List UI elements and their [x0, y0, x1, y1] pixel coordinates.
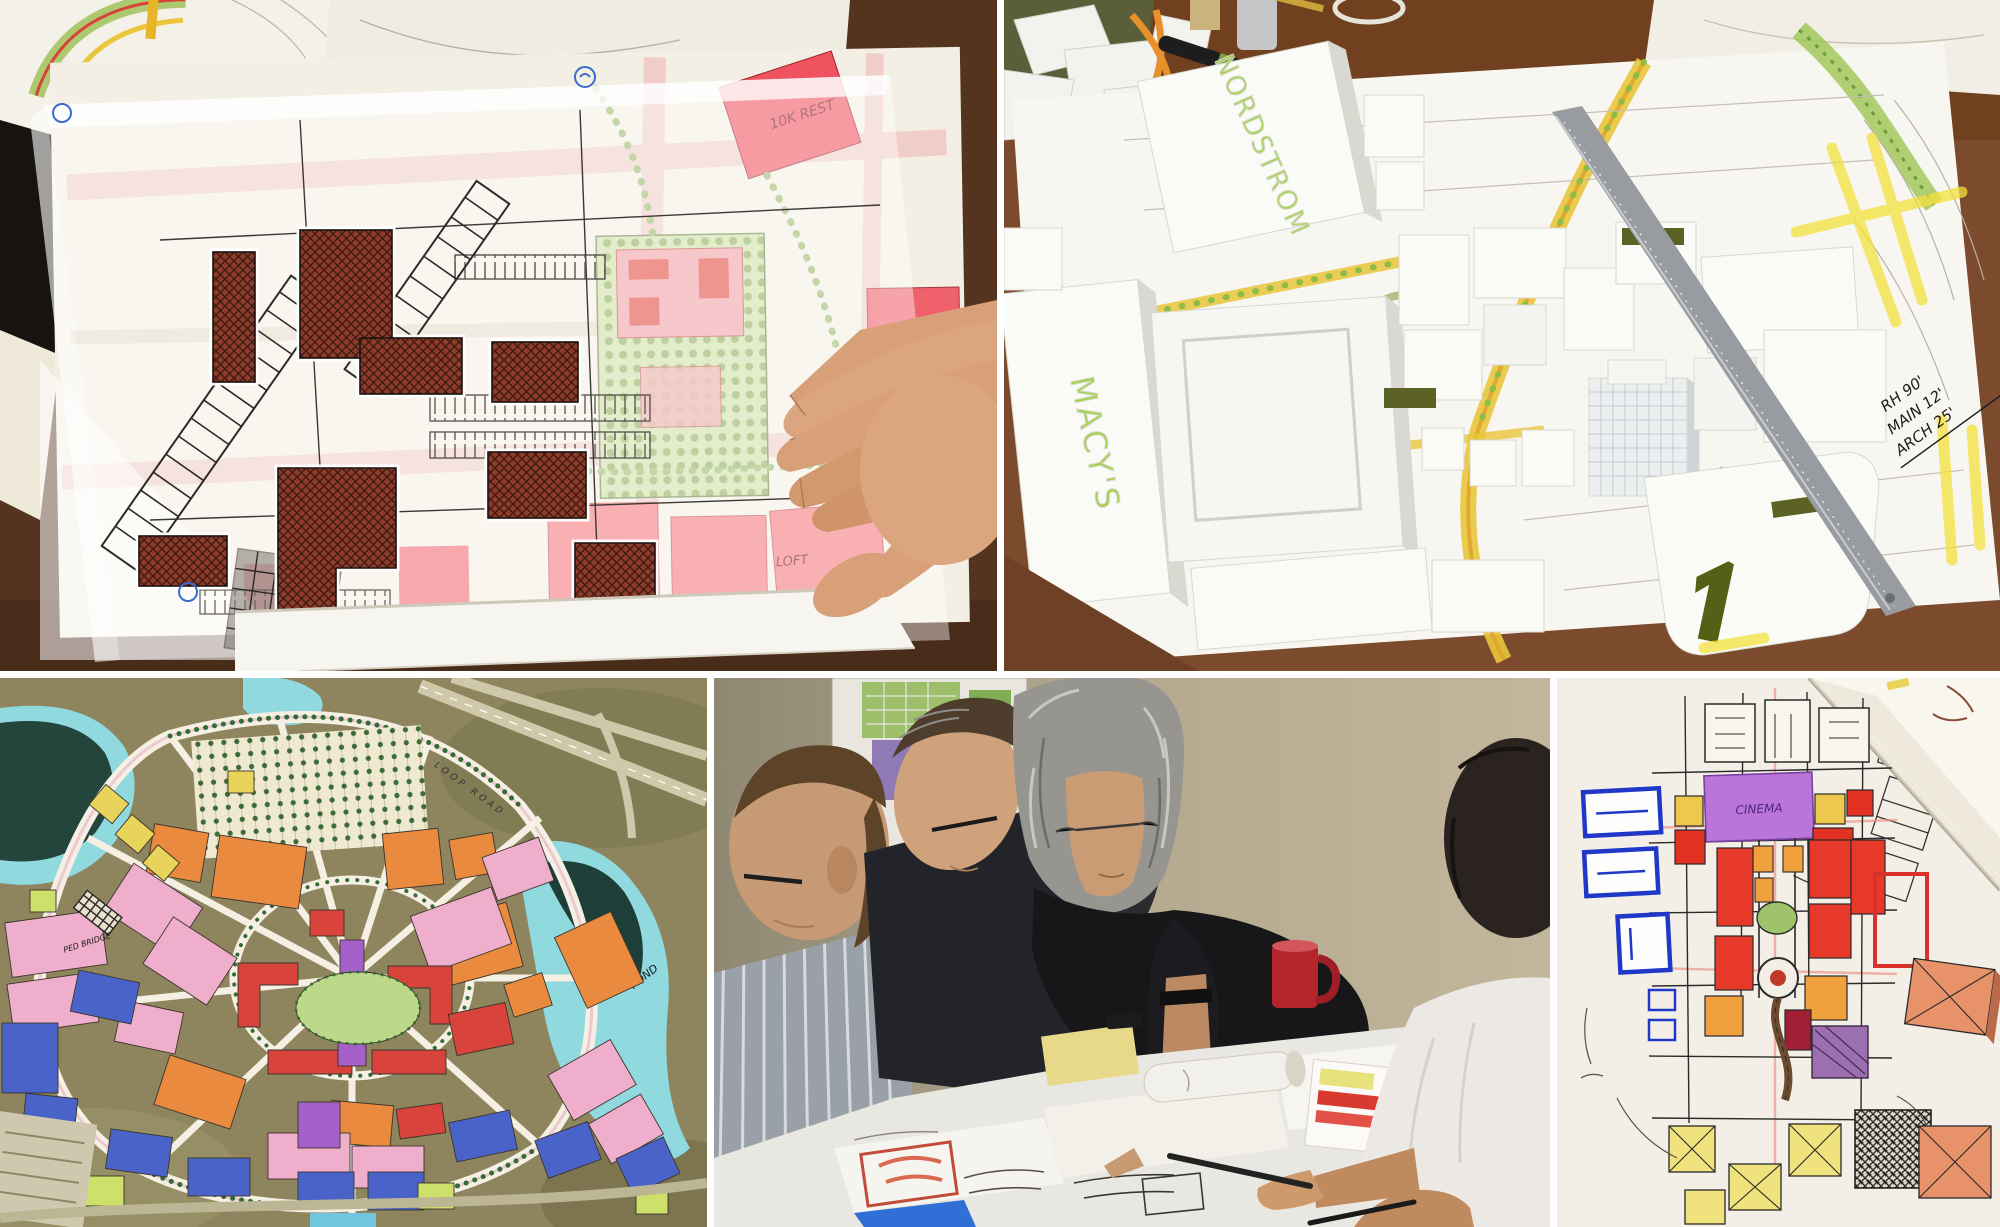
rounded-cluster [1644, 452, 1879, 655]
foam-model-illustration: NORDSTROM MACY'S [1004, 0, 2000, 671]
cinema-label: CINEMA [1735, 801, 1783, 817]
design-meeting-illustration [714, 678, 1550, 1227]
panel-trace-sketch-photo: 10K REST LOFT [0, 0, 997, 671]
panel-design-meeting-photo [714, 678, 1550, 1227]
panel-color-sketch-photo: CINEMA [1557, 678, 2000, 1227]
panel-foam-model-photo: NORDSTROM MACY'S [1004, 0, 2000, 671]
bottle [1190, 0, 1220, 30]
spray-can [1237, 0, 1277, 50]
color-sketch-illustration: CINEMA [1557, 678, 2000, 1227]
trace-sketch-illustration: 10K REST LOFT [0, 0, 997, 671]
pool [310, 1213, 376, 1227]
master-plan-illustration: POND LOOP ROAD [0, 678, 707, 1227]
photo-collage: 10K REST LOFT [0, 0, 2000, 1227]
panel-master-plan-photo: POND LOOP ROAD [0, 678, 707, 1227]
